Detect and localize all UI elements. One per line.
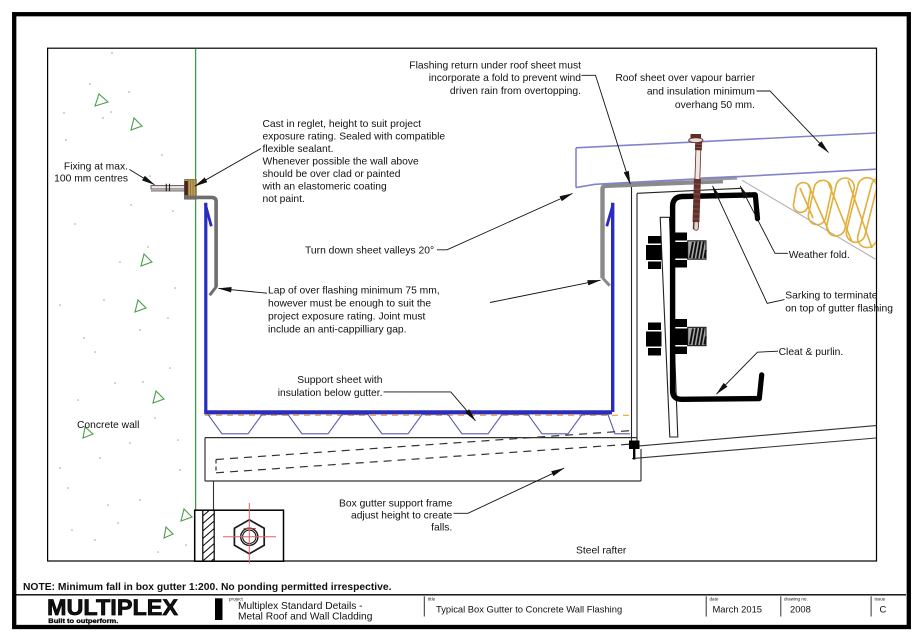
svg-text:not paint.: not paint. [263, 194, 305, 205]
svg-text:with an elastomeric coating: with an elastomeric coating [262, 181, 387, 192]
svg-text:Built to outperform.: Built to outperform. [48, 618, 118, 625]
svg-text:Turn down sheet valleys 20°: Turn down sheet valleys 20° [305, 246, 434, 257]
svg-text:insulation below gutter.: insulation below gutter. [278, 388, 383, 399]
svg-text:Fixing at max.: Fixing at max. [64, 162, 128, 173]
svg-text:Flashing return under roof she: Flashing return under roof sheet must [409, 61, 581, 72]
svg-text:include an anti-cappilliary ga: include an anti-cappilliary gap. [268, 324, 407, 335]
svg-text:MULTIPLEX: MULTIPLEX [47, 595, 178, 620]
svg-text:Sarking to terminate: Sarking to terminate [785, 290, 877, 301]
svg-text:Steel rafter: Steel rafter [576, 546, 627, 557]
svg-text:100 mm centres: 100 mm centres [54, 174, 128, 185]
svg-text:adjust height to create: adjust height to create [351, 510, 453, 521]
svg-text:2008: 2008 [790, 603, 811, 614]
svg-text:issue: issue [875, 597, 886, 602]
svg-text:incorporate a fold to prevent: incorporate a fold to prevent wind [429, 73, 582, 84]
svg-text:NOTE: Minimum fall in box gutt: NOTE: Minimum fall in box gutter 1:200. … [23, 582, 392, 593]
svg-text:Support sheet with: Support sheet with [297, 375, 383, 386]
svg-text:title: title [428, 597, 436, 602]
svg-text:Typical Box Gutter to Concrete: Typical Box Gutter to Concrete Wall Flas… [436, 604, 622, 615]
svg-text:date: date [710, 597, 719, 602]
svg-text:and insulation minimum: and insulation minimum [647, 87, 755, 98]
svg-text:Whenever possible the wall abo: Whenever possible the wall above [263, 156, 420, 167]
svg-text:on top of gutter flashing: on top of gutter flashing [785, 303, 893, 314]
svg-text:Concrete wall: Concrete wall [77, 420, 139, 431]
svg-text:March 2015: March 2015 [713, 603, 763, 614]
svg-text:Box gutter support frame: Box gutter support frame [339, 499, 453, 510]
svg-text:flexible sealant.: flexible sealant. [263, 144, 334, 155]
svg-text:Cleat & purlin.: Cleat & purlin. [779, 347, 844, 358]
svg-text:should be over clad or painted: should be over clad or painted [263, 169, 401, 180]
svg-text:drawing no.: drawing no. [784, 597, 808, 602]
svg-text:Metal Roof and Wall Cladding: Metal Roof and Wall Cladding [238, 611, 373, 622]
svg-text:Roof sheet over vapour barrier: Roof sheet over vapour barrier [615, 73, 755, 84]
svg-text:overhang 50 mm.: overhang 50 mm. [675, 100, 755, 111]
svg-text:project exposure rating. Joint: project exposure rating. Joint must [268, 311, 426, 322]
svg-text:exposure rating. Sealed with c: exposure rating. Sealed with compatible [263, 131, 446, 142]
svg-text:however must be enough to suit: however must be enough to suit the [268, 299, 431, 310]
svg-text:Cast in reglet, height to suit: Cast in reglet, height to suit project [263, 119, 422, 130]
svg-text:Lap of over flashing minimum 7: Lap of over flashing minimum 75 mm, [268, 286, 440, 297]
svg-text:driven rain from overtopping.: driven rain from overtopping. [450, 86, 581, 97]
svg-text:Weather fold.: Weather fold. [789, 250, 850, 261]
svg-text:falls.: falls. [431, 522, 452, 533]
svg-text:C: C [880, 603, 887, 614]
